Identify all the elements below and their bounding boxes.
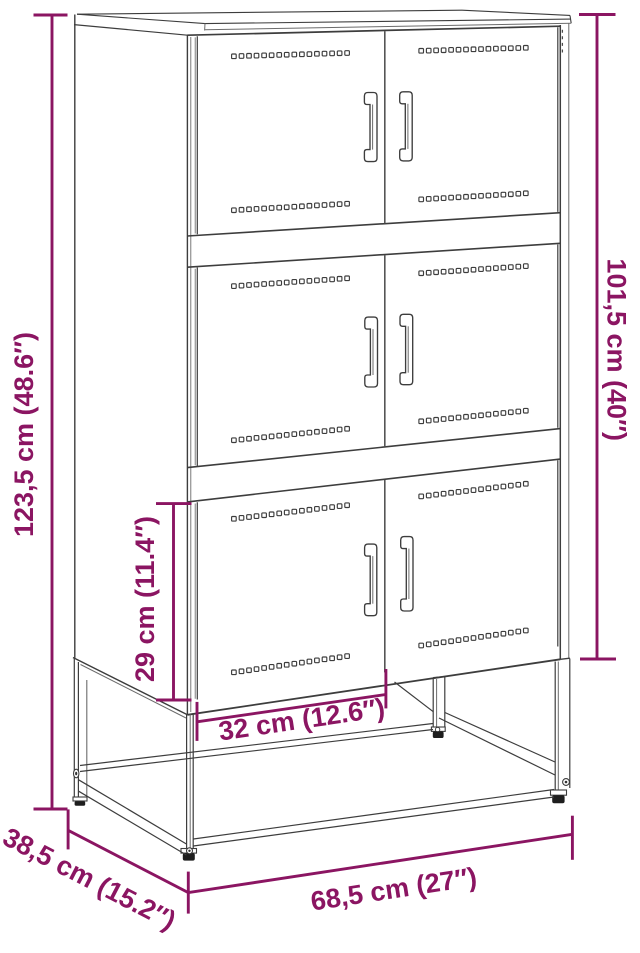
svg-text:29 cm (11.4″): 29 cm (11.4″): [130, 516, 160, 682]
svg-text:123,5 cm (48.6″): 123,5 cm (48.6″): [9, 332, 39, 537]
svg-text:101,5 cm (40″): 101,5 cm (40″): [601, 258, 631, 441]
